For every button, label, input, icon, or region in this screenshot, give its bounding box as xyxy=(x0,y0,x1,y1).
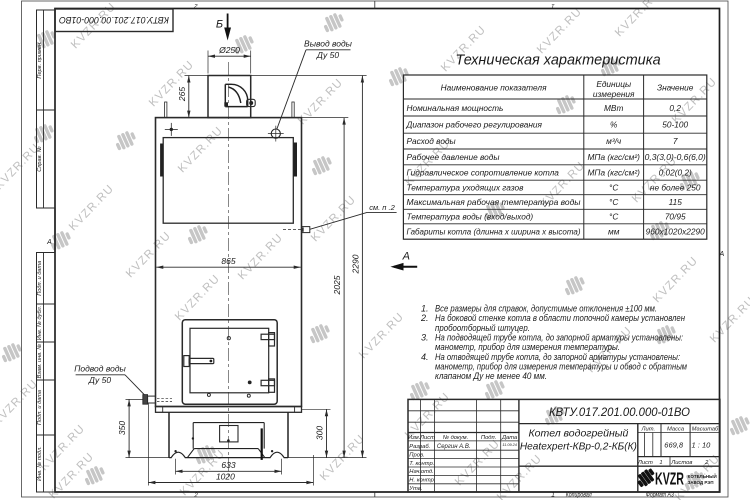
svg-text:3.: 3. xyxy=(421,333,429,343)
svg-text:1 : 10: 1 : 10 xyxy=(692,441,712,450)
svg-text:Котел водогрейный: Котел водогрейный xyxy=(528,427,628,439)
svg-text:мм: мм xyxy=(608,227,620,237)
svg-text:0,3(3,0)-0,6(6,0): 0,3(3,0)-0,6(6,0) xyxy=(645,152,706,162)
svg-text:Инв. № подл.: Инв. № подл. xyxy=(37,446,43,481)
svg-text:Ду 50: Ду 50 xyxy=(316,50,339,60)
svg-text:манометр, прибор для измерения: манометр, прибор для измерения температу… xyxy=(435,342,620,352)
svg-text:115: 115 xyxy=(669,197,683,207)
svg-text:Ду 50: Ду 50 xyxy=(88,375,111,385)
svg-text:На боковой стенке котла в обла: На боковой стенке котла в области топочн… xyxy=(435,313,685,323)
svg-text:Инв. № дубл.: Инв. № дубл. xyxy=(37,306,43,340)
svg-text:Копировал: Копировал xyxy=(566,492,592,499)
svg-text:Температура уходящих газов: Температура уходящих газов xyxy=(407,183,525,193)
svg-text:Формат А3: Формат А3 xyxy=(646,492,674,499)
svg-text:КВТУ.017.201.00.000-01ВО: КВТУ.017.201.00.000-01ВО xyxy=(58,14,169,25)
svg-text:На отводящей трубе котла, до з: На отводящей трубе котла, до запорной ар… xyxy=(435,352,680,362)
svg-text:клапаном Ду не менее 40 мм.: клапаном Ду не менее 40 мм. xyxy=(435,371,547,381)
svg-text:А: А xyxy=(718,251,724,258)
svg-text:пробоотборный штуцер.: пробоотборный штуцер. xyxy=(435,323,530,333)
svg-text:%: % xyxy=(610,120,618,130)
svg-text:Максимальная рабочая температу: Максимальная рабочая температура воды xyxy=(407,197,581,207)
svg-text:Масштаб: Масштаб xyxy=(692,427,719,433)
svg-text:м³/ч: м³/ч xyxy=(606,136,622,146)
svg-text:2025: 2025 xyxy=(332,275,342,295)
svg-text:Н. контр.: Н. контр. xyxy=(409,478,435,484)
svg-text:Взам. инв. №: Взам. инв. № xyxy=(37,344,43,379)
svg-text:Вывод воды: Вывод воды xyxy=(304,39,353,49)
svg-text:265: 265 xyxy=(177,87,187,102)
svg-text:1: 1 xyxy=(659,460,662,466)
svg-text:МПа (кгс/см²): МПа (кгс/см²) xyxy=(588,168,641,178)
svg-text:Т. контр.: Т. контр. xyxy=(409,461,434,467)
svg-text:Ø250: Ø250 xyxy=(218,45,240,55)
svg-text:°С: °С xyxy=(609,212,619,222)
svg-text:№ докум.: № докум. xyxy=(443,435,469,441)
svg-text:KVZR: KVZR xyxy=(655,469,684,489)
svg-text:Значение: Значение xyxy=(657,83,694,93)
svg-text:Нач.отд.: Нач.отд. xyxy=(409,469,433,475)
svg-text:МВт: МВт xyxy=(604,103,623,113)
svg-text:Листов: Листов xyxy=(670,460,692,466)
svg-text:1.: 1. xyxy=(421,304,429,314)
svg-text:Heatexpert-КВр-0,2-КБ(К): Heatexpert-КВр-0,2-КБ(К) xyxy=(520,440,637,452)
svg-text:Изм.: Изм. xyxy=(408,435,420,441)
svg-text:Единицы: Единицы xyxy=(596,79,631,89)
svg-text:манометр, прибор для измерения: манометр, прибор для измерения температу… xyxy=(435,361,687,371)
svg-text:2: 2 xyxy=(193,493,198,499)
svg-text:0,02(0,2): 0,02(0,2) xyxy=(659,168,692,178)
svg-text:Лит.: Лит. xyxy=(641,427,656,433)
svg-text:Справ. №: Справ. № xyxy=(37,146,43,171)
svg-text:Утв.: Утв. xyxy=(408,486,422,492)
svg-text:Температура воды (вход/выход): Температура воды (вход/выход) xyxy=(407,212,534,222)
svg-text:Б: Б xyxy=(216,19,223,31)
svg-text:960х1020х2290: 960х1020х2290 xyxy=(646,227,705,237)
svg-text:На подводящей трубе котла, до: На подводящей трубе котла, до запорной а… xyxy=(435,333,683,343)
svg-text:Диапазон рабочего регулировани: Диапазон рабочего регулирования xyxy=(406,120,543,130)
svg-text:4.: 4. xyxy=(421,352,429,362)
svg-text:2290: 2290 xyxy=(350,254,360,274)
svg-text:Пров.: Пров. xyxy=(409,452,424,458)
svg-text:1: 1 xyxy=(551,492,555,499)
svg-text:Подп.: Подп. xyxy=(481,435,496,441)
svg-text:°С: °С xyxy=(609,183,619,193)
svg-text:50-100: 50-100 xyxy=(662,120,688,130)
svg-text:Разраб.: Разраб. xyxy=(409,444,430,450)
svg-text:°С: °С xyxy=(609,197,619,207)
svg-text:300: 300 xyxy=(314,426,324,440)
svg-text:Подвод воды: Подвод воды xyxy=(74,364,126,374)
svg-text:1020: 1020 xyxy=(216,472,235,482)
svg-text:Лист: Лист xyxy=(419,435,435,441)
svg-text:Масса: Масса xyxy=(667,427,685,433)
svg-text:Сергин А.В.: Сергин А.В. xyxy=(437,444,471,450)
svg-text:см. п .2: см. п .2 xyxy=(369,203,395,212)
svg-text:2.: 2. xyxy=(420,313,429,323)
svg-text:11.09.24: 11.09.24 xyxy=(502,443,517,447)
svg-text:669,8: 669,8 xyxy=(664,440,684,449)
svg-text:Расход воды: Расход воды xyxy=(407,136,456,146)
svg-text:Рабочее давление воды: Рабочее давление воды xyxy=(407,152,500,162)
svg-text:Подп. и дата: Подп. и дата xyxy=(37,261,43,296)
svg-text:Подп. и дата: Подп. и дата xyxy=(37,390,43,425)
svg-text:0,2: 0,2 xyxy=(669,103,681,113)
svg-text:Все размеры для справок, допус: Все размеры для справок, допустимые откл… xyxy=(435,304,657,314)
svg-text:ЗАВОД РЭП: ЗАВОД РЭП xyxy=(688,480,714,486)
svg-text:7: 7 xyxy=(673,136,678,146)
svg-text:Лист: Лист xyxy=(637,460,653,466)
svg-text:350: 350 xyxy=(117,421,127,435)
svg-text:633: 633 xyxy=(221,460,235,470)
svg-text:70/95: 70/95 xyxy=(665,212,686,222)
svg-text:Габариты котла (длинна х ширин: Габариты котла (длинна х ширина х высота… xyxy=(407,227,581,237)
svg-text:865: 865 xyxy=(221,256,235,266)
svg-text:КВТУ.017.201.00.000-01ВО: КВТУ.017.201.00.000-01ВО xyxy=(549,405,690,419)
svg-text:2: 2 xyxy=(194,3,199,9)
svg-text:1: 1 xyxy=(551,3,554,9)
svg-text:Перв. примен.: Перв. примен. xyxy=(37,41,43,78)
svg-text:измерения: измерения xyxy=(593,89,635,99)
svg-text:Гидравлическое сопротивление к: Гидравлическое сопротивление котла xyxy=(407,168,560,178)
svg-text:Наименование показателя: Наименование показателя xyxy=(441,83,547,93)
svg-text:МПа (кгс/см²): МПа (кгс/см²) xyxy=(588,152,641,162)
svg-text:А: А xyxy=(46,239,52,246)
svg-text:Номинальная мощность: Номинальная мощность xyxy=(407,103,504,113)
svg-text:А: А xyxy=(402,251,410,263)
svg-text:не более 250: не более 250 xyxy=(650,183,701,193)
svg-text:Дата: Дата xyxy=(501,435,518,441)
svg-text:Техническая характеристика: Техническая характеристика xyxy=(455,53,660,69)
